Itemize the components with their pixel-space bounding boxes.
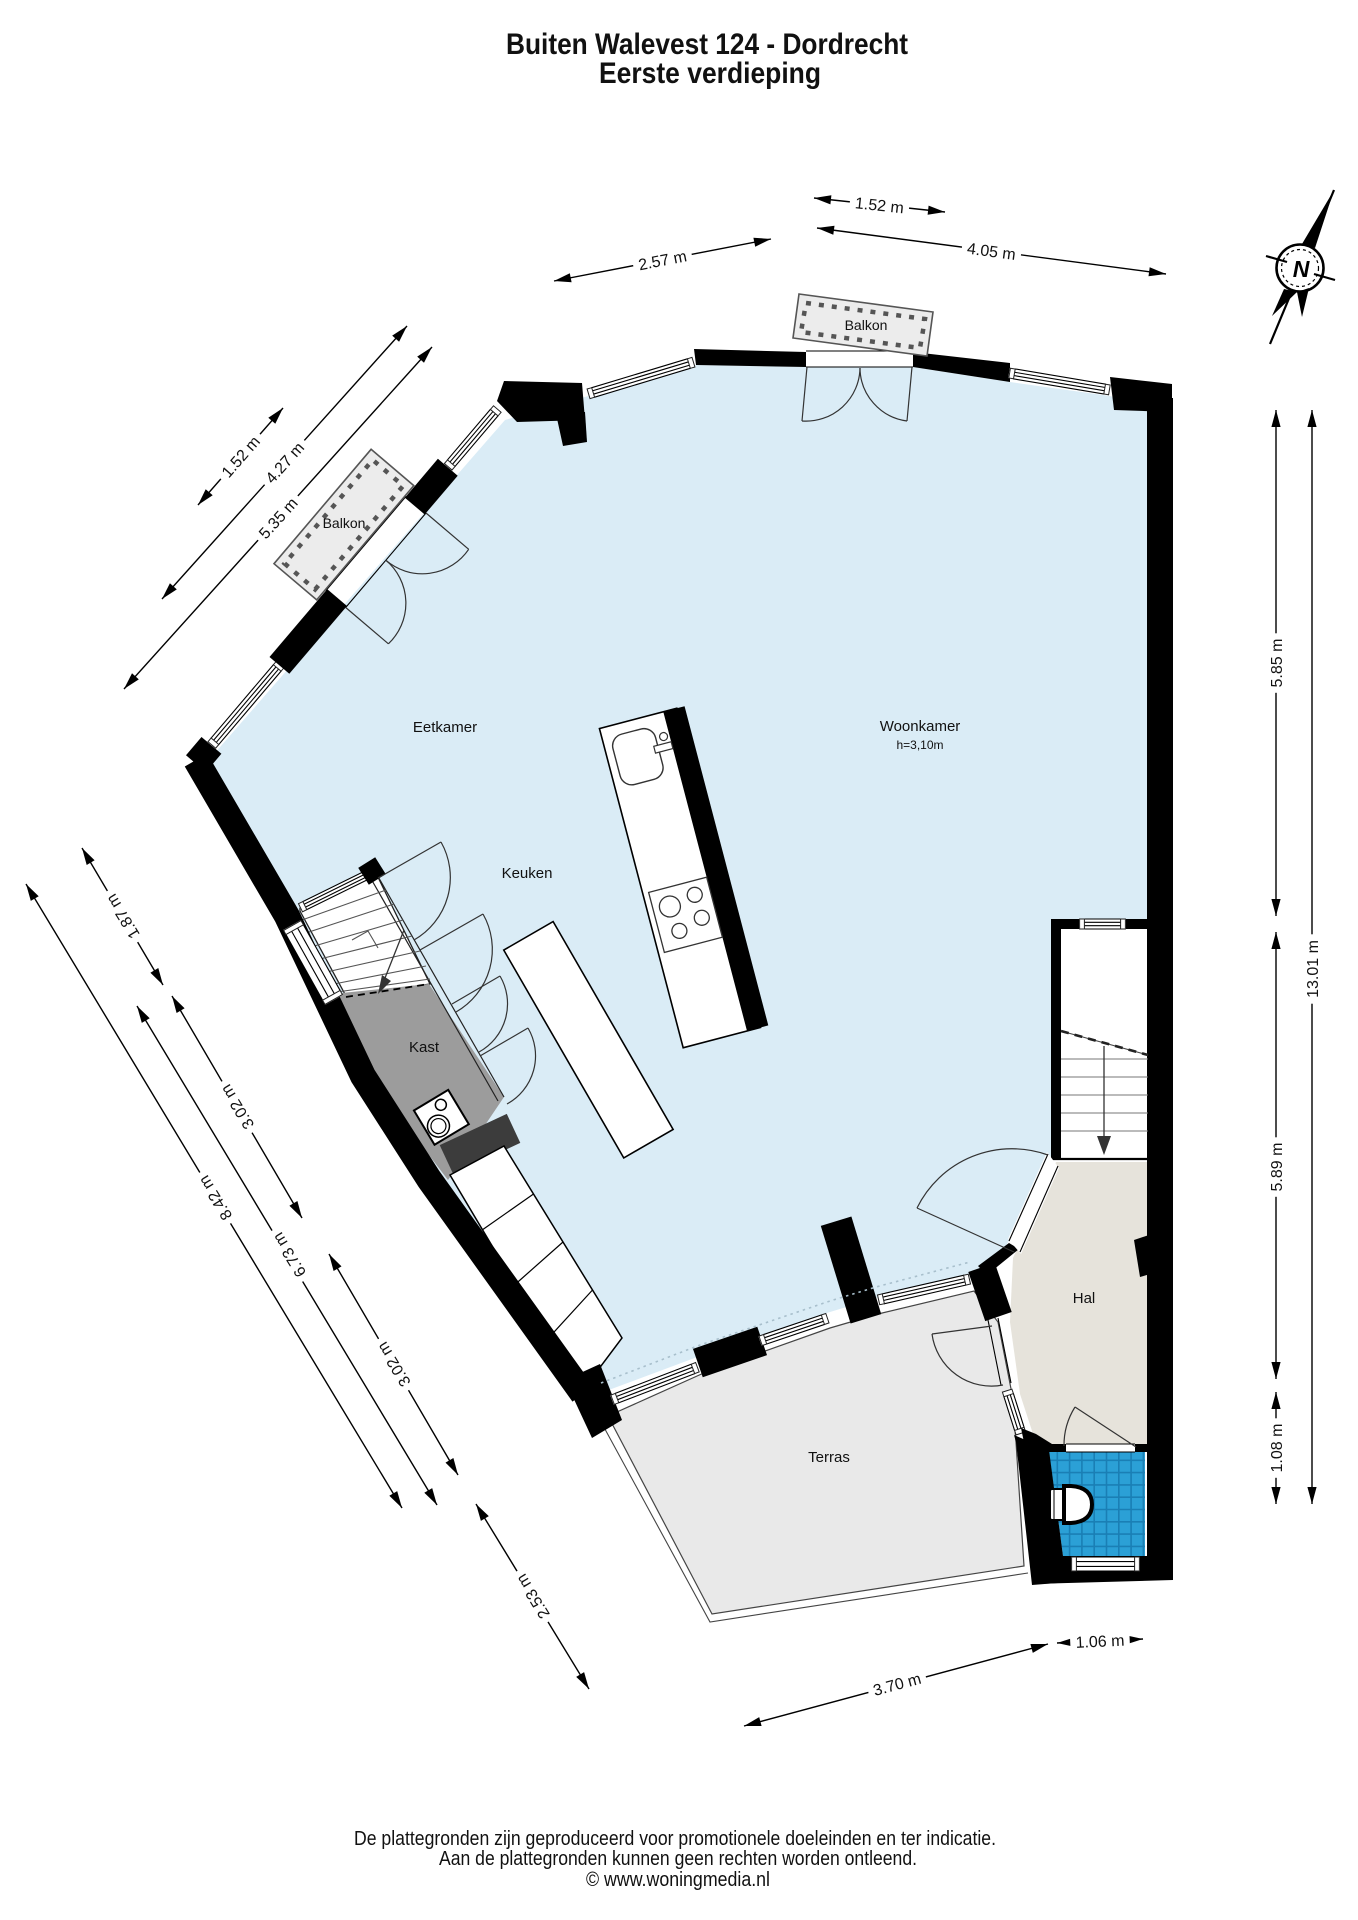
svg-text:Eerste verdieping: Eerste verdieping (599, 57, 821, 90)
svg-text:Balkon: Balkon (323, 515, 366, 531)
svg-text:5.85 m: 5.85 m (1269, 639, 1286, 688)
svg-text:Balkon: Balkon (845, 317, 888, 333)
svg-text:Kast: Kast (409, 1039, 440, 1056)
svg-text:Keuken: Keuken (502, 865, 553, 882)
svg-text:5.89 m: 5.89 m (1269, 1143, 1286, 1192)
svg-text:Terras: Terras (808, 1449, 850, 1466)
svg-text:1.08 m: 1.08 m (1269, 1424, 1286, 1473)
svg-text:1.06 m: 1.06 m (1075, 1633, 1125, 1652)
svg-text:Eetkamer: Eetkamer (413, 719, 477, 736)
svg-text:Woonkamer: Woonkamer (880, 718, 961, 735)
svg-text:Hal: Hal (1073, 1290, 1096, 1307)
svg-text:De plattegronden zijn geproduc: De plattegronden zijn geproduceerd voor … (354, 1828, 996, 1850)
svg-text:h=3,10m: h=3,10m (896, 738, 943, 752)
svg-text:© www.woningmedia.nl: © www.woningmedia.nl (586, 1869, 770, 1891)
svg-text:Aan de plattegronden kunnen ge: Aan de plattegronden kunnen geen rechten… (439, 1848, 917, 1870)
svg-text:N: N (1293, 256, 1310, 282)
svg-text:13.01 m: 13.01 m (1305, 940, 1322, 998)
